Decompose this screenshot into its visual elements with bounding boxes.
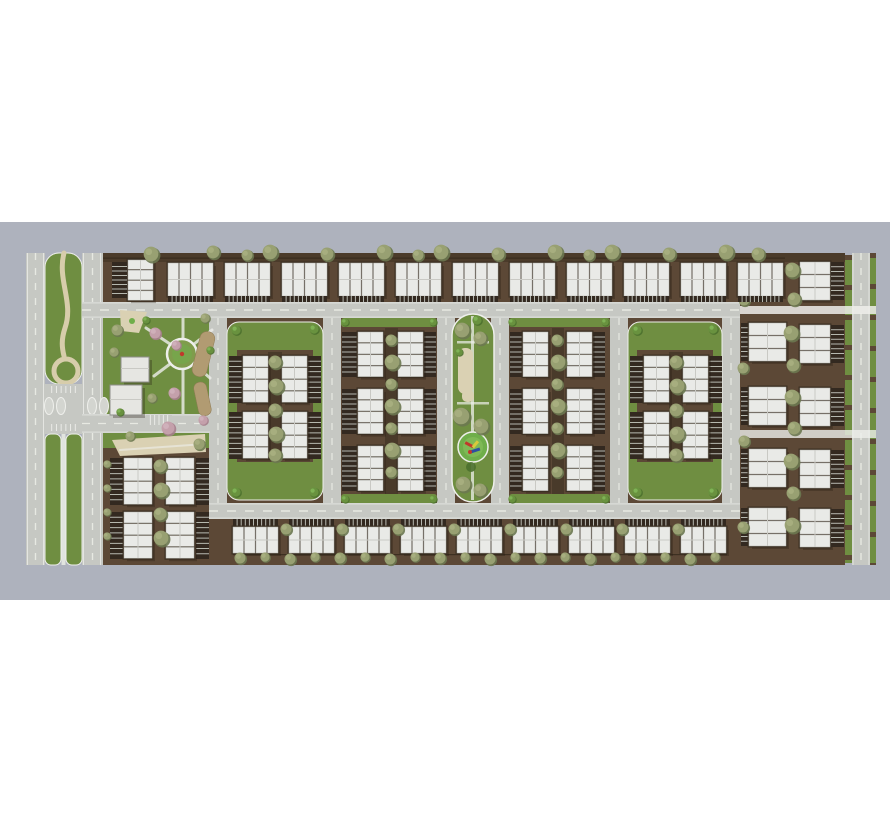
tree-highlight <box>111 349 115 353</box>
tree-highlight <box>509 496 512 499</box>
tree-highlight <box>387 424 392 429</box>
tree-highlight <box>270 450 276 456</box>
driveway-base <box>510 389 523 434</box>
plaza-center <box>180 352 184 356</box>
crosswalk <box>47 386 80 393</box>
tree-highlight <box>338 525 343 530</box>
tree-highlight <box>430 496 433 499</box>
tree-highlight <box>786 519 793 526</box>
tree-highlight <box>173 342 177 346</box>
tree-highlight <box>312 554 316 558</box>
tree-highlight <box>552 356 559 363</box>
tree-highlight <box>664 249 670 255</box>
tree-highlight <box>553 336 558 341</box>
tree-highlight <box>636 554 641 559</box>
park-path <box>471 316 474 500</box>
driveway-base <box>510 296 555 302</box>
pavilion-roof <box>121 357 149 382</box>
road-edge-line <box>209 503 740 504</box>
tree-highlight <box>671 450 677 456</box>
tree-highlight <box>475 485 481 491</box>
driveway-base <box>342 389 357 434</box>
tree-highlight <box>151 329 156 334</box>
tree-highlight <box>113 326 118 331</box>
tree-highlight <box>509 319 512 322</box>
tree-highlight <box>739 523 744 528</box>
driveway-base <box>196 458 209 505</box>
tree-highlight <box>602 496 605 499</box>
tree-highlight <box>155 461 161 467</box>
tree-highlight <box>208 247 214 253</box>
tree-highlight <box>475 333 481 339</box>
road-edge-line <box>853 253 854 565</box>
tree-highlight <box>233 489 237 493</box>
tree-highlight <box>104 485 107 488</box>
tree-highlight <box>386 555 391 560</box>
tree-highlight <box>155 509 161 515</box>
tree-highlight <box>236 554 241 559</box>
tree-highlight <box>163 423 169 429</box>
tree-highlight <box>586 555 591 560</box>
tree-highlight <box>786 264 793 271</box>
park-cross-path <box>457 402 489 405</box>
tree-highlight <box>674 525 679 530</box>
driveways <box>510 332 523 491</box>
driveway-base <box>453 296 498 302</box>
driveway-base <box>282 296 327 302</box>
tree-highlight <box>462 554 466 558</box>
tree-highlight <box>450 525 455 530</box>
tree-highlight <box>435 246 442 253</box>
road-edge-line <box>82 302 740 303</box>
road-edge-line <box>82 432 210 433</box>
east-walkway-mid <box>740 430 876 438</box>
road-edge-line <box>83 253 84 565</box>
tree-highlight <box>270 405 276 411</box>
road-edge-line <box>27 253 28 565</box>
tree-highlight <box>155 532 162 539</box>
tree-highlight <box>585 251 590 256</box>
tree-highlight <box>602 319 605 322</box>
driveway-base <box>681 296 726 302</box>
driveway-base <box>168 296 213 302</box>
driveway-base <box>510 446 523 491</box>
driveway-base <box>342 332 357 377</box>
tree-highlight <box>606 246 613 253</box>
road-edge-line <box>82 317 740 318</box>
tree-highlight <box>270 428 277 435</box>
driveway-base <box>510 332 523 377</box>
tree-highlight <box>104 509 107 512</box>
tree-highlight <box>511 554 515 558</box>
tree-highlight <box>233 327 237 331</box>
tree-highlight <box>387 336 392 341</box>
tree-highlight <box>311 326 315 330</box>
tree-highlight <box>720 246 727 253</box>
rowhouse-cluster <box>167 262 787 300</box>
tree-highlight <box>386 444 393 451</box>
tree-highlight <box>671 357 677 363</box>
tree-highlight <box>149 395 153 399</box>
median-walk <box>62 434 66 565</box>
road-edge-line <box>869 253 870 565</box>
tree-highlight <box>282 525 287 530</box>
tree-highlight <box>712 554 716 558</box>
driveway-base <box>738 296 783 302</box>
tree-highlight <box>262 554 266 558</box>
driveway-base <box>229 412 243 459</box>
driveway-base <box>396 296 441 302</box>
tree-highlight <box>264 246 271 253</box>
tree-highlight <box>456 349 459 352</box>
tree-highlight <box>270 357 276 363</box>
crosswalk <box>47 424 80 431</box>
tree-highlight <box>457 478 464 485</box>
tree-highlight <box>456 324 463 331</box>
tree-highlight <box>195 440 200 445</box>
park-shrub <box>466 462 476 472</box>
play-equipment <box>468 450 472 454</box>
tree-highlight <box>202 315 206 319</box>
driveway-base <box>339 296 384 302</box>
tree-highlight <box>739 364 744 369</box>
driveways <box>112 262 127 298</box>
garden-marker <box>129 318 135 324</box>
tree-highlight <box>342 319 345 322</box>
tree-highlight <box>553 380 558 385</box>
tree-highlight <box>455 410 463 418</box>
tree-highlight <box>634 327 638 331</box>
tree-highlight <box>430 319 433 322</box>
tree-highlight <box>342 496 345 499</box>
tree-highlight <box>686 555 691 560</box>
driveway-base <box>630 356 644 403</box>
tree-highlight <box>789 294 795 300</box>
tree-highlight <box>474 317 478 321</box>
tree-highlight <box>200 417 204 421</box>
tree-highlight <box>786 391 793 398</box>
tree-highlight <box>710 326 714 330</box>
tree-highlight <box>155 484 162 491</box>
driveway-base <box>624 296 669 302</box>
tree-highlight <box>662 554 666 558</box>
driveway-base <box>110 458 123 505</box>
block-b-lawn-s <box>341 494 437 503</box>
tree-highlight <box>336 554 341 559</box>
tree-highlight <box>710 489 714 493</box>
tree-highlight <box>553 424 558 429</box>
traffic-island <box>45 398 54 415</box>
tree-highlight <box>552 444 559 451</box>
tree-highlight <box>753 249 759 255</box>
tree-highlight <box>322 249 328 255</box>
tree-highlight <box>562 554 566 558</box>
tree-highlight <box>207 347 210 350</box>
tree-highlight <box>378 246 385 253</box>
driveway-base <box>225 296 270 302</box>
tree-highlight <box>117 409 120 412</box>
tree-highlight <box>789 423 795 429</box>
tree-highlight <box>671 380 678 387</box>
tree-highlight <box>788 360 794 366</box>
pavilion-roofline <box>121 368 149 369</box>
clubhouse-roofline <box>110 399 142 400</box>
block-b-lawn-n <box>341 318 437 327</box>
tree-highlight <box>493 249 499 255</box>
rowhouse-cluster <box>232 526 730 557</box>
tree-highlight <box>475 420 482 427</box>
tree-highlight <box>536 554 541 559</box>
median-lower-right <box>66 434 82 565</box>
tree-highlight <box>311 489 315 493</box>
east-walkway-north <box>740 306 876 314</box>
tree-highlight <box>552 400 559 407</box>
driveways <box>168 296 783 302</box>
driveway-base <box>110 512 123 559</box>
tree-highlight <box>612 554 616 558</box>
tree-highlight <box>286 555 291 560</box>
driveway-base <box>630 412 644 459</box>
tree-highlight <box>127 433 131 437</box>
corner-cluster <box>127 259 157 304</box>
tree-highlight <box>788 488 794 494</box>
traffic-island <box>57 398 66 415</box>
driveways <box>342 332 357 491</box>
tree-highlight <box>414 251 419 256</box>
tree-highlight <box>785 455 792 462</box>
tree-highlight <box>671 428 678 435</box>
tree-highlight <box>740 437 745 442</box>
tree-highlight <box>486 555 491 560</box>
driveway-base <box>196 512 209 559</box>
tree-highlight <box>394 525 399 530</box>
plaza-path <box>182 367 185 414</box>
tree-highlight <box>436 554 441 559</box>
tree-highlight <box>553 468 558 473</box>
median-lower-left <box>45 434 61 565</box>
plaza-path <box>182 318 185 340</box>
block-c-lawn-s <box>509 494 610 503</box>
tree-highlight <box>618 525 623 530</box>
tree-highlight <box>270 380 277 387</box>
park-sand-2 <box>462 390 474 402</box>
tree-highlight <box>145 248 152 255</box>
tree-highlight <box>387 468 392 473</box>
traffic-island <box>100 398 109 415</box>
tree-highlight <box>143 317 146 320</box>
road-edge-line <box>209 518 740 519</box>
tree-highlight <box>671 405 677 411</box>
tree-highlight <box>104 533 107 536</box>
driveway-base <box>342 446 357 491</box>
tree-highlight <box>387 380 392 385</box>
tree-highlight <box>362 554 366 558</box>
tree-highlight <box>634 489 638 493</box>
masterplan-rendering <box>0 0 890 820</box>
tree-highlight <box>549 246 556 253</box>
tree-highlight <box>104 461 107 464</box>
road-edge-line <box>43 253 44 565</box>
tree-highlight <box>412 554 416 558</box>
tree-highlight <box>243 251 248 256</box>
block-c-lawn-n <box>509 318 610 327</box>
tree-highlight <box>170 389 175 394</box>
traffic-island <box>88 398 97 415</box>
tree-highlight <box>562 525 567 530</box>
site-plan-svg <box>0 0 890 820</box>
tree-highlight <box>386 356 393 363</box>
tree-highlight <box>386 400 393 407</box>
driveway-base <box>229 356 243 403</box>
tree-highlight <box>785 327 792 334</box>
tree-highlight <box>506 525 511 530</box>
driveway-base <box>567 296 612 302</box>
